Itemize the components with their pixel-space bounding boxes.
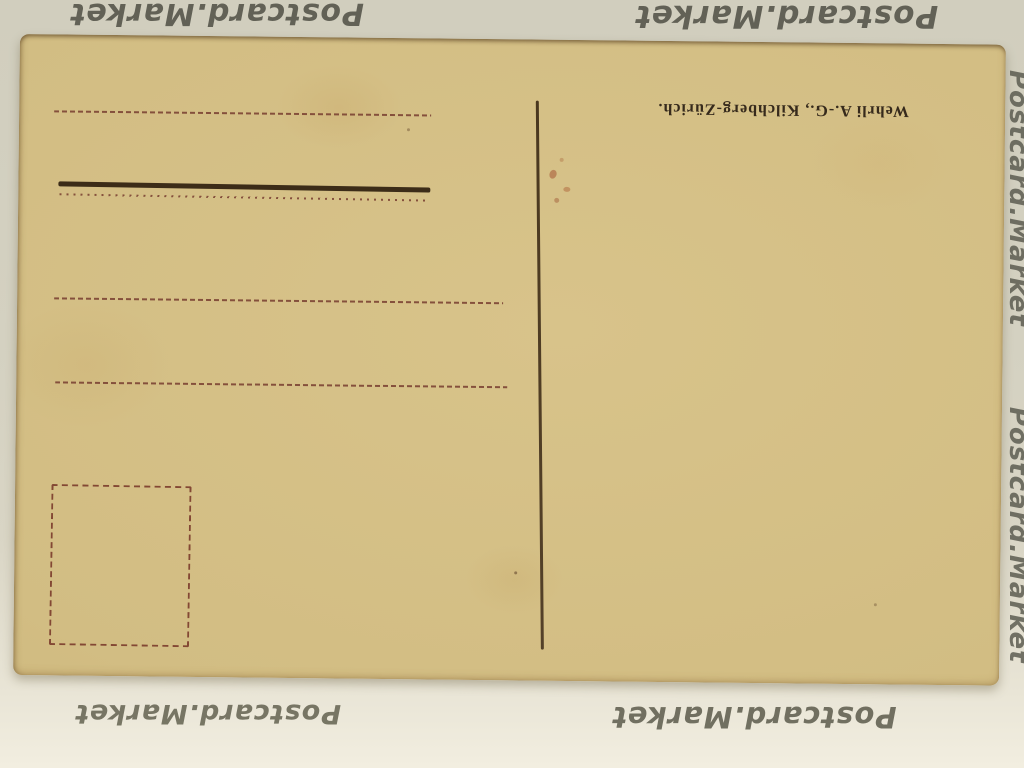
watermark-right-edge-text-2: Postcard.Market (1003, 407, 1024, 664)
watermark-bottom-right: Postcard.Market (612, 700, 897, 734)
watermark-bottom-left: Postcard.Market (75, 698, 341, 729)
stain-spot (563, 187, 570, 192)
stamp-box (49, 484, 192, 647)
address-line-dotted-under-solid (59, 193, 429, 201)
watermark-top-left: Postcard.Market (70, 0, 364, 31)
divider-line (536, 101, 544, 650)
watermark-top-right: Postcard.Market (635, 0, 938, 34)
paper-speck (514, 571, 517, 574)
postcard: Wehrli A.-G., Kilchberg-Zürich. (13, 34, 1006, 686)
watermark-right-edge-text-1: Postcard.Market (1003, 70, 1024, 327)
stain-spot (560, 158, 564, 162)
address-line-dashed-3 (55, 381, 507, 388)
stain-spot (548, 169, 558, 180)
address-line-dashed-1 (54, 110, 431, 116)
stain-spot (554, 198, 559, 203)
paper-speck (407, 128, 410, 131)
writing-line-solid (58, 181, 430, 192)
address-line-dashed-2 (54, 297, 503, 304)
watermark-right-edge: Postcard.Market Postcard.Market (1000, 70, 1024, 730)
printer-imprint: Wehrli A.-G., Kilchberg-Zürich. (629, 99, 937, 120)
paper-speck (874, 603, 877, 606)
photo-of-postcard-back: { "watermark": { "text": "Postcard.Marke… (0, 0, 1024, 768)
